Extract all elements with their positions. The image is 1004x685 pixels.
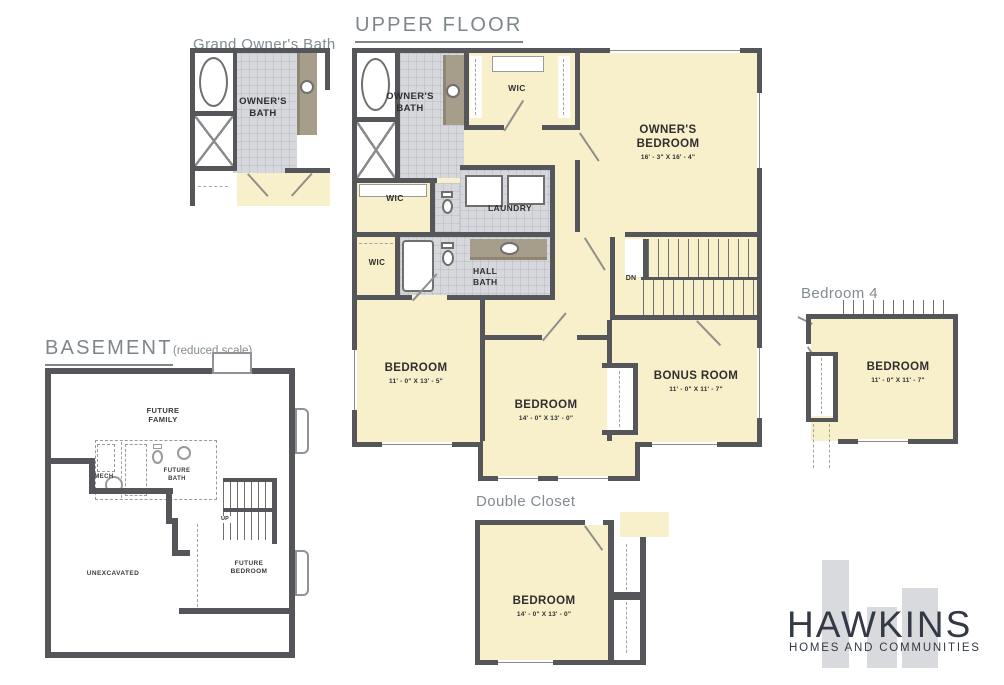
closet-rod-line <box>626 602 627 653</box>
future-family-label: FUTURE FAMILY <box>123 406 203 425</box>
hall-bath-label: HALL BATH <box>455 266 511 287</box>
floor-plan-sheet: UPPER FLOOR Grand Owner's Bath Bedroom 4… <box>0 0 1004 685</box>
shower-icon <box>357 122 395 178</box>
wall <box>464 53 469 130</box>
unexcavated-label: UNEXCAVATED <box>65 570 161 578</box>
wall <box>610 237 615 320</box>
owners-bedroom-label: OWNER'S BEDROOM <box>598 123 738 152</box>
bedroom-floor <box>480 525 608 660</box>
wall <box>810 314 958 319</box>
owners-bath-label: OWNER'S BATH <box>228 96 298 120</box>
wall <box>195 166 237 171</box>
door-icon <box>584 237 605 270</box>
owners-bath-label: OWNER'S BATH <box>375 91 445 115</box>
toilet-icon <box>442 250 454 266</box>
wall <box>325 48 330 90</box>
stairs-icon <box>648 239 757 277</box>
double-closet-title: Double Closet <box>476 493 575 510</box>
toilet-icon <box>442 199 453 214</box>
window-icon <box>610 48 740 53</box>
dryer-icon <box>507 175 545 205</box>
window-icon <box>652 442 717 447</box>
bedroom-dims: 11' - 0" X 11' - 7" <box>843 377 953 385</box>
wall <box>357 295 412 300</box>
future-bedroom-label: FUTURE BEDROOM <box>207 560 291 576</box>
wall <box>172 550 190 556</box>
window-icon <box>757 93 762 168</box>
wall <box>607 320 612 363</box>
wall <box>475 520 585 525</box>
linen-closet <box>195 171 233 204</box>
adjacent-floor <box>620 512 669 537</box>
wall <box>190 48 330 53</box>
stairs-dn-label: DN <box>619 275 643 283</box>
door-icon <box>579 132 599 161</box>
window-icon <box>757 348 762 418</box>
future-vanity <box>97 444 115 472</box>
closet-shelf <box>492 56 544 72</box>
wall <box>89 488 173 494</box>
logo-wordmark: HAWKINS <box>787 604 972 646</box>
sink-icon <box>446 84 460 98</box>
wall <box>577 335 607 340</box>
laundry-label: LAUNDRY <box>470 203 550 214</box>
bedroom-dims: 14' - 0" X 13' - 0" <box>487 415 605 423</box>
wall <box>953 314 958 444</box>
wall <box>395 53 400 181</box>
closet <box>614 542 640 592</box>
sink-icon <box>300 80 314 94</box>
stairs-icon <box>843 300 951 314</box>
wall <box>480 295 485 442</box>
owners-bedroom-dims: 16' - 3" X 16' - 4" <box>598 154 738 162</box>
wall <box>475 520 480 665</box>
toilet-icon <box>152 450 163 464</box>
closet-shelf-line <box>359 243 393 244</box>
toilet-icon <box>441 191 453 198</box>
wall <box>485 335 542 340</box>
window-icon <box>382 442 452 447</box>
wall <box>272 478 277 544</box>
toilet-icon <box>441 242 454 249</box>
wall <box>190 48 195 206</box>
window-icon <box>858 439 908 444</box>
wall <box>806 314 811 344</box>
closet-rod-line <box>821 358 822 414</box>
grand-owners-bath-plan: OWNER'S BATH <box>190 48 330 206</box>
wall <box>357 232 555 237</box>
upper-floor-title: UPPER FLOOR <box>355 14 523 43</box>
window-icon <box>558 476 608 481</box>
closet-rod-line <box>626 544 627 590</box>
bedroom-dims: 11' - 0" X 13' - 5" <box>357 378 475 386</box>
vanity-counter <box>297 53 317 135</box>
bonus-room-label: BONUS ROOM <box>637 369 755 383</box>
wall <box>643 239 648 279</box>
basement-areaway-bump <box>212 352 252 374</box>
shower-icon <box>195 116 233 166</box>
closet-rod-line <box>619 371 620 427</box>
bedroom-bump-floor <box>483 441 635 477</box>
wall <box>575 160 580 232</box>
upper-floor-plan: OWNER'S BATH WIC OWNER'S BEDROOM 16' - 3… <box>352 48 762 447</box>
stairs-icon <box>223 482 273 508</box>
wic-label: WIC <box>360 193 430 204</box>
wic-label: WIC <box>477 83 557 94</box>
sink-icon <box>177 446 191 460</box>
bedroom4-plan: BEDROOM 11' - 0" X 11' - 7" <box>798 300 958 470</box>
basement-plan: FUTURE FAMILY MECH FUTURE BATH UP FUTURE… <box>45 368 295 658</box>
window-well <box>295 550 309 596</box>
bedroom-label: BEDROOM <box>357 361 475 375</box>
future-bath-label: FUTURE BATH <box>153 468 201 483</box>
door-icon <box>696 320 721 345</box>
wall <box>460 165 555 170</box>
double-closet-plan: BEDROOM 14' - 0" X 13' - 0" <box>473 512 669 670</box>
wall <box>179 608 289 614</box>
wall <box>464 125 504 130</box>
door-icon <box>542 312 566 341</box>
stairs-up-label: UP <box>215 516 235 523</box>
bonus-room-dims: 11' - 0" X 11' - 7" <box>637 386 755 394</box>
closet-shelf-line <box>198 186 228 187</box>
wall <box>625 232 757 237</box>
bedroom-dims: 14' - 0" X 13' - 0" <box>491 611 597 619</box>
wall <box>806 418 838 422</box>
wall <box>610 315 757 320</box>
logo-tagline: HOMES AND COMMUNITIES <box>789 642 981 654</box>
wall <box>285 168 330 173</box>
closet <box>607 368 633 430</box>
wall <box>357 178 437 183</box>
stair-opening <box>625 239 643 277</box>
future-wall-dash <box>813 424 814 468</box>
window-icon <box>498 660 553 665</box>
wall <box>430 183 435 237</box>
window-well <box>295 408 309 454</box>
wic-label: WIC <box>357 258 397 268</box>
closet-rod-line <box>563 59 564 115</box>
closet-organizer <box>558 56 570 118</box>
bathtub-icon <box>402 240 434 292</box>
wall <box>357 117 400 122</box>
wall <box>833 352 838 422</box>
bedroom-label: BEDROOM <box>491 594 597 608</box>
bedroom-label: BEDROOM <box>487 398 605 412</box>
wall <box>575 53 580 130</box>
stairs-icon <box>643 280 757 315</box>
basement-title: BASEMENT <box>45 337 173 366</box>
bedroom-label: BEDROOM <box>843 360 953 374</box>
closet <box>811 356 833 416</box>
toilet-icon <box>153 444 162 449</box>
closet <box>614 600 640 655</box>
bathtub-icon <box>199 57 228 107</box>
door-icon <box>503 100 523 131</box>
sink-icon <box>500 242 519 255</box>
future-wall-dash <box>197 524 198 612</box>
future-wall-dash <box>829 424 830 468</box>
closet-rod-line <box>475 59 476 115</box>
wall <box>447 295 555 300</box>
wall <box>640 537 646 665</box>
window-icon <box>498 476 538 481</box>
